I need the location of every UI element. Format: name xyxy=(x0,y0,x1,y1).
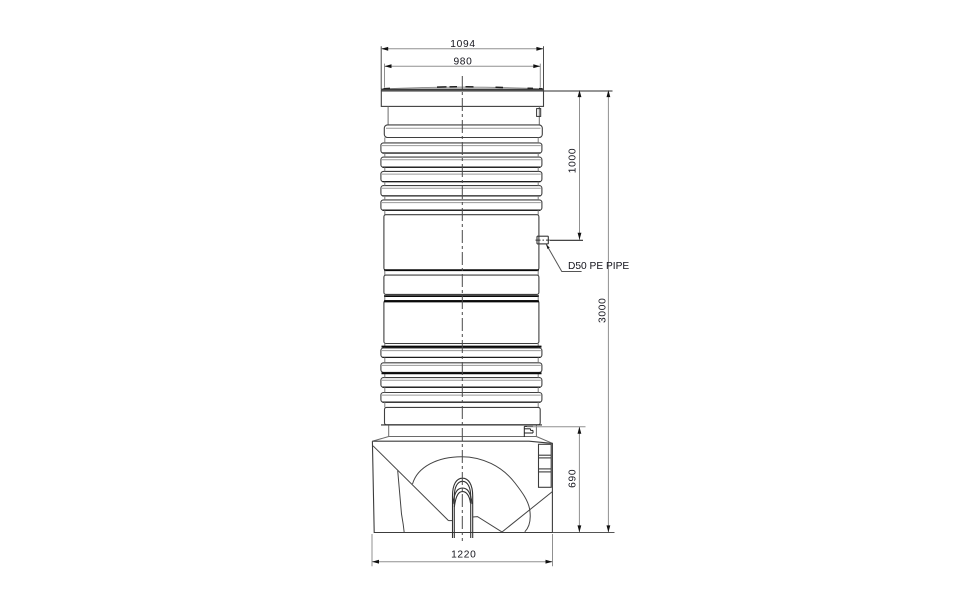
svg-text:D50 PE PIPE: D50 PE PIPE xyxy=(568,261,629,272)
svg-text:1094: 1094 xyxy=(450,39,475,50)
svg-text:980: 980 xyxy=(453,56,472,67)
svg-text:690: 690 xyxy=(567,469,578,488)
svg-text:3000: 3000 xyxy=(598,298,609,323)
svg-text:1000: 1000 xyxy=(567,148,578,173)
svg-text:1220: 1220 xyxy=(451,550,476,561)
